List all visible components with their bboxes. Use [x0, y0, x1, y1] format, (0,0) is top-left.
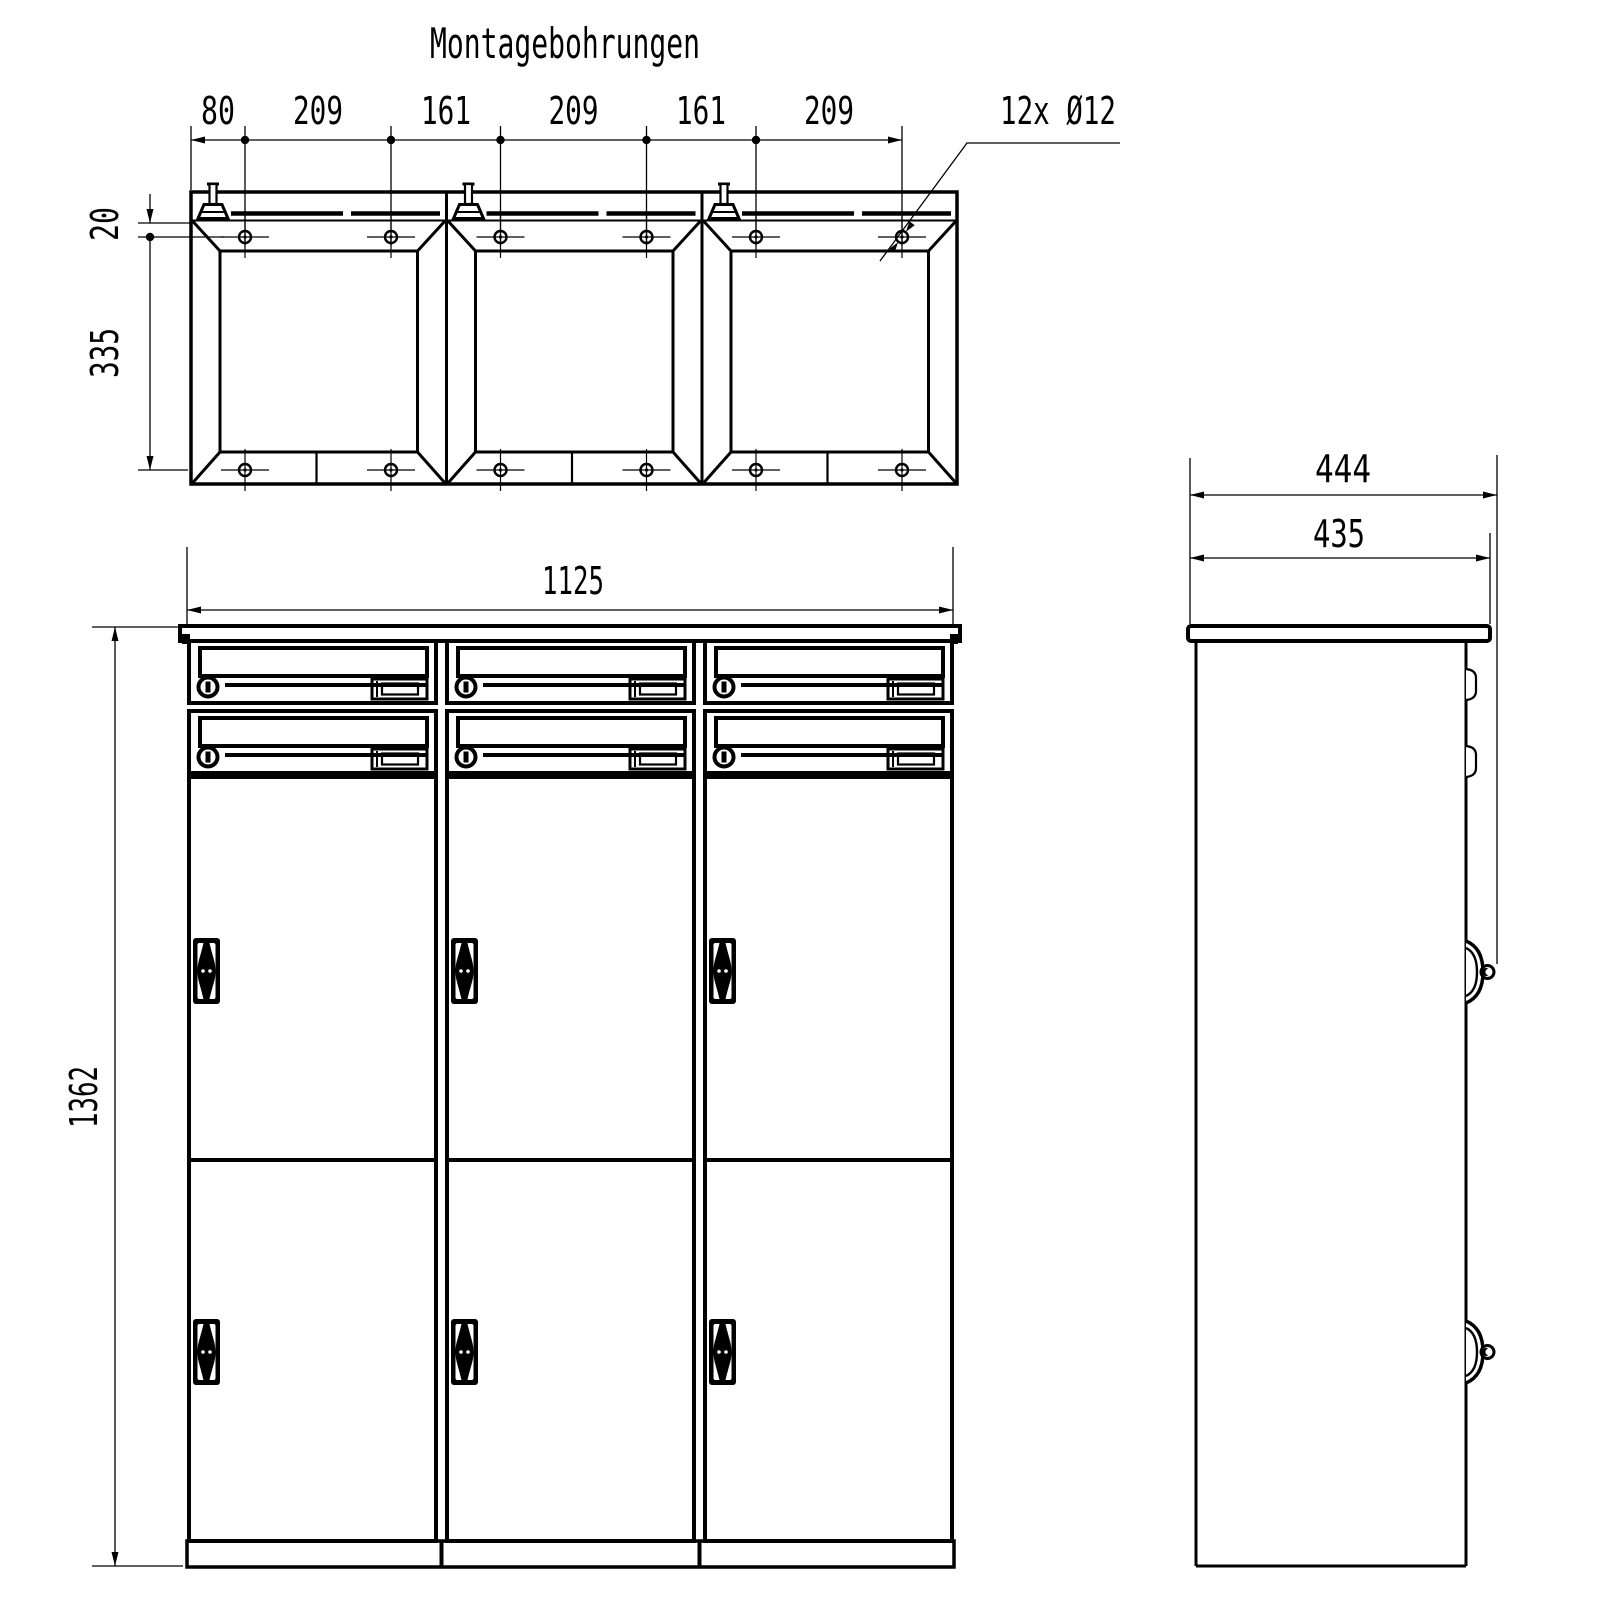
dim-label: 209: [804, 89, 854, 133]
mailbox-compartment: [189, 641, 436, 703]
top-view-compartment: [448, 184, 701, 491]
dim-label: 80: [201, 89, 235, 133]
cabinet-base: [187, 1541, 954, 1567]
mailbox-cabinet-drawing: Montagebohrungen 80 209: [0, 0, 1600, 1600]
drawing-title: Montagebohrungen: [430, 19, 700, 68]
top-view: 80 209 161 209 161 209 20 335 12x Ø12: [83, 89, 1120, 491]
mail-flap-edge: [1466, 746, 1476, 777]
door-handle-icon: [451, 938, 478, 1004]
locker-door: [189, 777, 436, 1160]
dim-label: 444: [1315, 447, 1371, 491]
dimension-width: 1125: [187, 547, 953, 624]
locker-door: [189, 1160, 436, 1541]
hole-note-leader: 12x Ø12: [880, 89, 1120, 261]
dim-label: 161: [421, 89, 471, 133]
mailbox-compartment: [447, 641, 694, 703]
dimension-depth: 444 435: [1190, 447, 1497, 964]
door-handle-icon: [451, 1319, 478, 1385]
locker-door: [705, 1160, 952, 1541]
dim-label: 209: [293, 89, 343, 133]
technical-drawing-canvas: Montagebohrungen 80 209: [0, 0, 1600, 1600]
dimension-height: 1362: [62, 627, 183, 1566]
dim-label: 1362: [62, 1066, 106, 1128]
door-handle-icon: [709, 1319, 736, 1385]
mail-flap-edge: [1466, 669, 1476, 700]
dim-label: 20: [83, 207, 127, 241]
locker-door: [705, 777, 952, 1160]
dim-label: 209: [549, 89, 599, 133]
top-view-compartment: [704, 184, 957, 491]
mailbox-compartment: [189, 711, 436, 773]
door-handle-icon: [193, 938, 220, 1004]
door-handle-icon: [709, 938, 736, 1004]
dim-label: 1125: [542, 559, 604, 603]
dim-label: 435: [1313, 512, 1365, 556]
mailbox-compartment: [705, 711, 952, 773]
cabinet-lid-side: [1188, 626, 1490, 641]
locker-door: [447, 1160, 694, 1541]
top-view-outline: [191, 192, 957, 484]
top-view-compartment: [193, 184, 446, 491]
dimension-chain-horizontal: 80 209 161 209 161 209: [191, 89, 902, 246]
side-knob: [1466, 941, 1494, 1003]
locker-door: [447, 777, 694, 1160]
side-view: 444 435: [1188, 447, 1497, 1566]
cabinet-lid: [180, 626, 960, 641]
side-knob: [1466, 1321, 1494, 1383]
mailbox-compartment: [447, 711, 694, 773]
door-handle-icon: [193, 1319, 220, 1385]
front-view: 1125 1362: [62, 547, 960, 1567]
dim-label: 335: [83, 328, 127, 378]
mailbox-compartment: [705, 641, 952, 703]
leader-line: [880, 143, 1120, 261]
dim-label: 161: [676, 89, 726, 133]
dimension-vertical-offsets: 20 335: [83, 194, 224, 470]
hole-count-note: 12x Ø12: [1000, 89, 1116, 133]
